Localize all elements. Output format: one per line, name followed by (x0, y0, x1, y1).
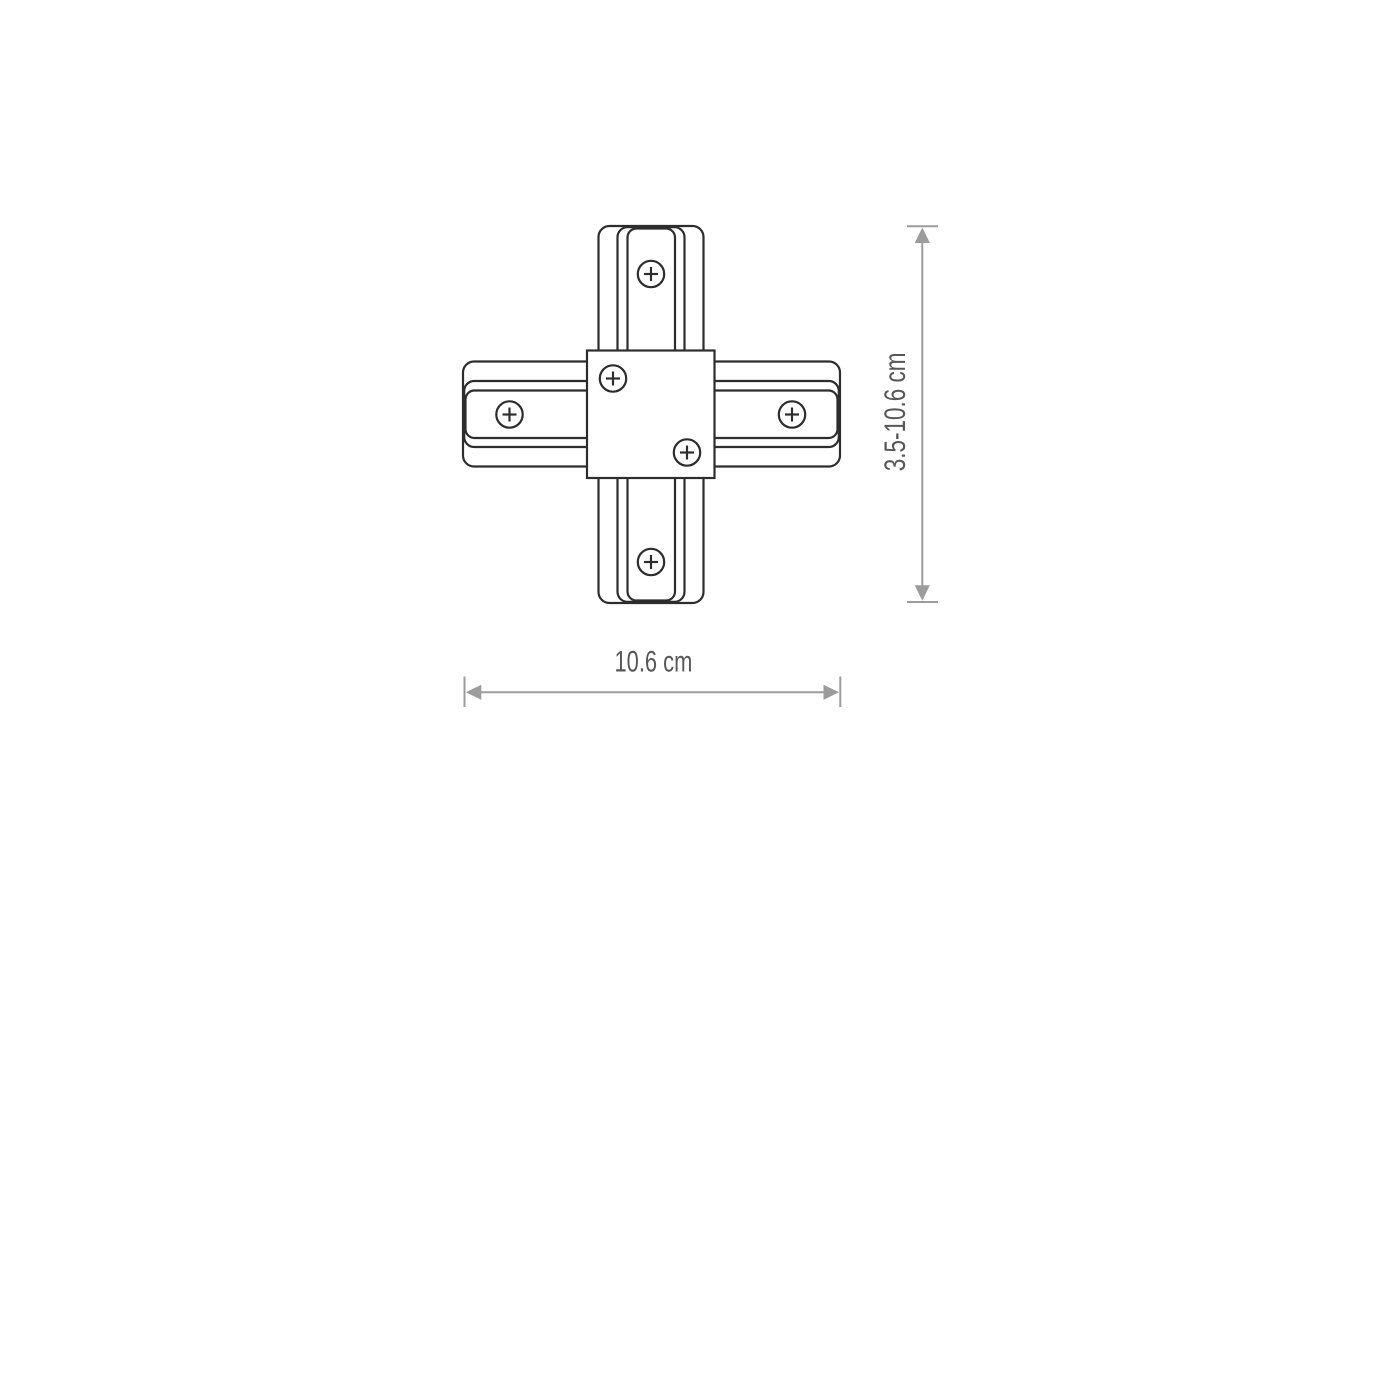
svg-text:10.6 cm: 10.6 cm (614, 644, 692, 678)
svg-text:3.5-10.6 cm: 3.5-10.6 cm (878, 353, 912, 472)
